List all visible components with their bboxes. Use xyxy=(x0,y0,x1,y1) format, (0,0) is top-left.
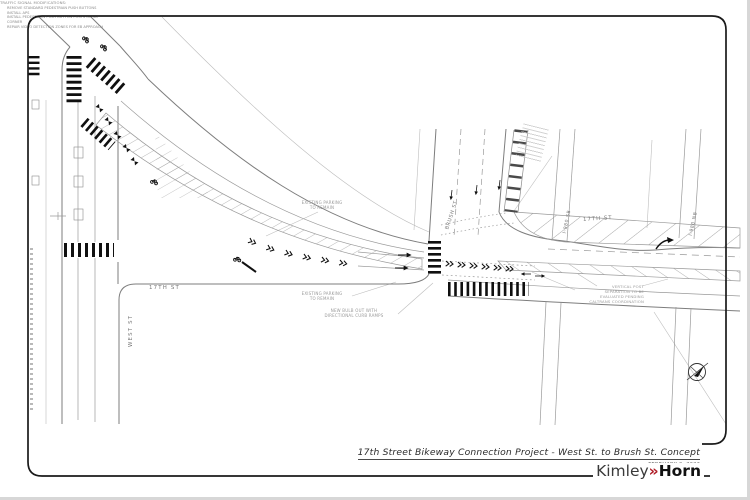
crosswalks xyxy=(34,56,529,289)
existing-parking-note-upper: EXISTING PARKING TO REMAIN xyxy=(294,200,350,211)
parking-stalls xyxy=(32,100,83,220)
bulb-out-note: NEW BULB OUT WITH DIRECTIONAL CURB RAMPS xyxy=(316,308,392,319)
sheet-border xyxy=(28,16,726,476)
sheet-title: 17th Street Bikeway Connection Project -… xyxy=(358,447,700,460)
north-arrow-icon xyxy=(687,363,708,381)
plot-stamp xyxy=(30,248,33,413)
plan-linework xyxy=(0,0,750,500)
logo-horn: Horn xyxy=(659,462,701,480)
logo-chevrons-icon: » xyxy=(649,462,659,480)
hatched-buffers xyxy=(96,113,740,281)
logo-kimley: Kimley xyxy=(596,462,649,480)
vertical-post-note: VERTICAL POST SEPARATION TO BE EVALUATED… xyxy=(566,284,644,305)
bollard-mark xyxy=(242,262,256,272)
plan-sheet: BRUSH ST I-980 SB I-980 NB 17TH ST 17TH … xyxy=(0,0,750,500)
west-st-label: WEST ST xyxy=(128,315,135,347)
kimley-horn-logo: Kimley»Horn xyxy=(593,463,704,480)
existing-parking-note-lower: EXISTING PARKING TO REMAIN xyxy=(294,291,350,302)
17th-st-west-label: 17TH ST xyxy=(149,285,180,292)
curb-lines xyxy=(38,16,740,424)
